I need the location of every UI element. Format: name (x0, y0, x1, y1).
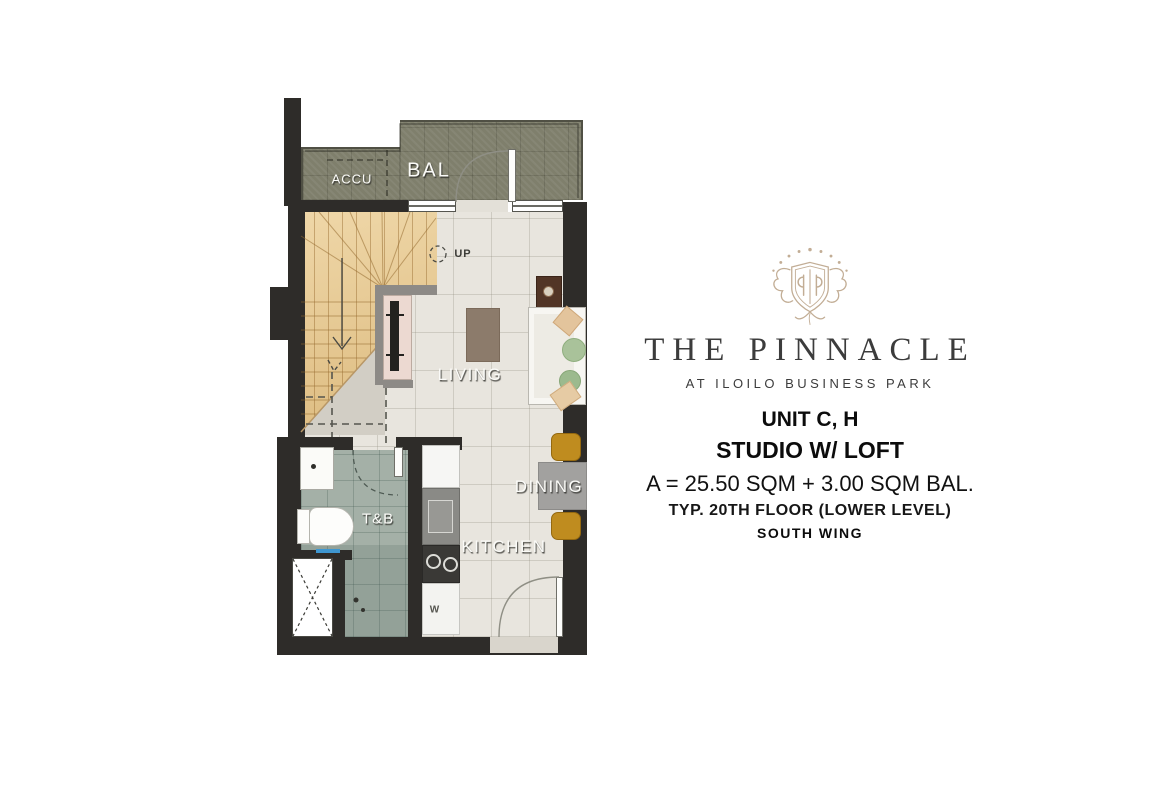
bath-vanity (300, 447, 334, 490)
unit-floor-level: TYP. 20TH FLOOR (LOWER LEVEL) (615, 502, 1005, 520)
tv-bracket-bottom (386, 354, 404, 356)
refrigerator (422, 445, 460, 488)
unit-area: A = 25.50 SQM + 3.00 SQM BAL. (615, 471, 1005, 497)
loft-edge-wall-horizontal (375, 285, 437, 295)
up-label: UP (454, 248, 471, 260)
sofa-pillow-green-1 (562, 338, 586, 362)
pinnacle-crest-logo (755, 246, 865, 330)
shower-drain-strip (316, 549, 340, 553)
toilet-bath-label: T&B (362, 511, 394, 528)
tv-panel (390, 301, 399, 371)
unit-type: STUDIO W/ LOFT (615, 437, 1005, 464)
table-lamp (543, 286, 554, 297)
brand-name: THE PINNACLE (615, 332, 1005, 369)
unit-info-block: THE PINNACLE AT ILOILO BUSINESS PARK UNI… (615, 246, 1005, 541)
unit-name: UNIT C, H (615, 408, 1005, 432)
washer-label: W (430, 605, 440, 616)
tv-bracket-top (386, 314, 404, 316)
kitchen-label: KITCHEN (461, 537, 546, 557)
sink-basin (428, 500, 453, 533)
washer (422, 583, 460, 635)
dining-chair-bottom (551, 512, 581, 540)
loft-edge-wall-vertical (375, 285, 383, 385)
toilet-bowl (309, 507, 354, 546)
brand-tagline: AT ILOILO BUSINESS PARK (615, 376, 1005, 391)
living-label: LIVING (438, 365, 503, 385)
vanity-drain (311, 464, 316, 469)
floor-plan: BAL ACCU UP LIVING DINING KITCHEN T&B W (270, 98, 600, 655)
dining-label: DINING (515, 477, 584, 497)
console-base-wall (383, 380, 413, 388)
balcony-label: BAL (407, 160, 451, 183)
accu-label: ACCU (332, 172, 373, 187)
floor-plan-sheet: { "plan": { "labels": { "balcony": "BAL"… (0, 0, 1170, 785)
burner-right (443, 557, 458, 572)
unit-wing: SOUTH WING (615, 525, 1005, 541)
dining-chair-top (551, 433, 581, 461)
burner-left (426, 554, 441, 569)
coffee-table (466, 308, 500, 362)
